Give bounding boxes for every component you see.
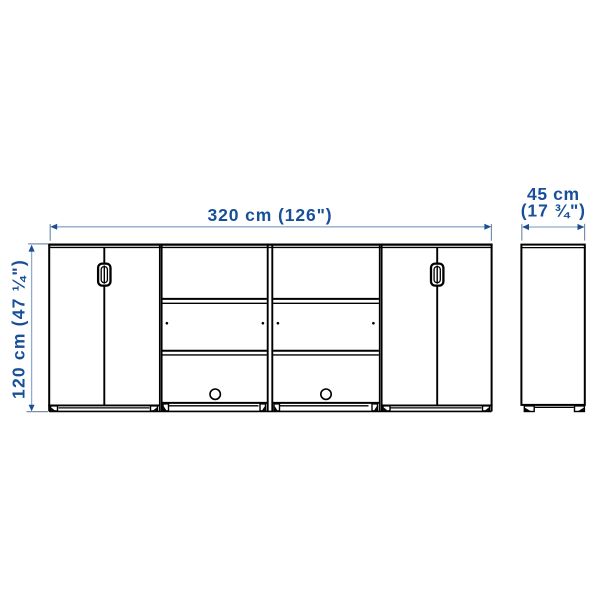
svg-text:320 cm (126"): 320 cm (126") <box>207 205 332 225</box>
svg-text:(17 ¾"): (17 ¾") <box>521 201 586 221</box>
svg-text:120 cm (47 ¼"): 120 cm (47 ¼") <box>9 259 29 399</box>
